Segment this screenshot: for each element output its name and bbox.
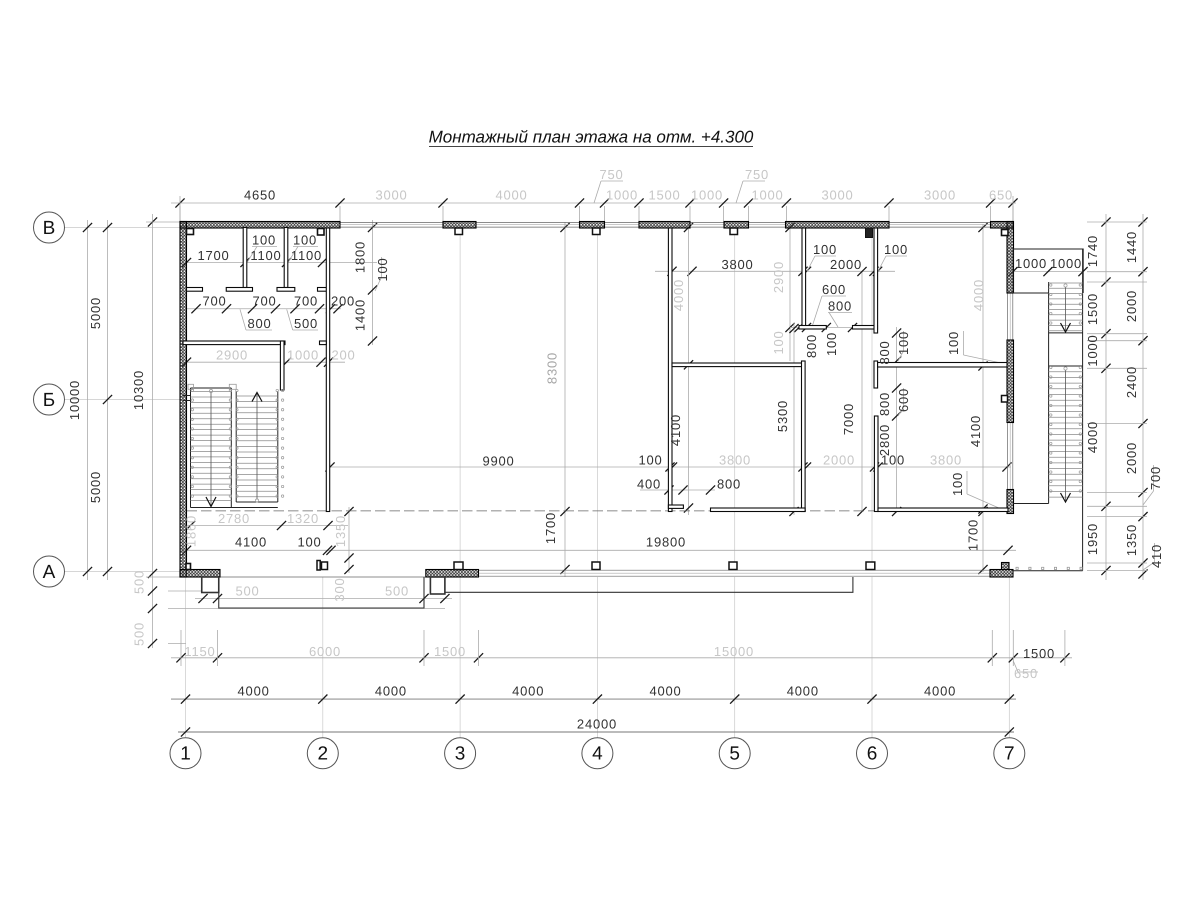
svg-text:500: 500 [132,570,147,594]
svg-text:1150: 1150 [184,644,215,659]
svg-text:700: 700 [1148,466,1163,490]
svg-text:8300: 8300 [545,352,560,384]
svg-text:10300: 10300 [131,370,146,410]
svg-text:4000: 4000 [512,684,544,699]
svg-text:Б: Б [43,390,55,411]
svg-text:1500: 1500 [1085,293,1100,325]
svg-text:1100: 1100 [291,248,322,263]
svg-text:2780: 2780 [218,511,250,526]
svg-text:2900: 2900 [771,261,786,293]
svg-text:В: В [43,218,56,239]
svg-text:100: 100 [881,453,905,468]
svg-text:3800: 3800 [719,453,751,468]
svg-text:4000: 4000 [671,279,686,311]
svg-text:700: 700 [252,294,276,309]
svg-text:5: 5 [729,744,740,765]
svg-text:200: 200 [331,294,355,309]
svg-text:4000: 4000 [238,684,270,699]
svg-text:600: 600 [896,388,911,412]
svg-text:3000: 3000 [924,188,956,203]
svg-text:4100: 4100 [668,414,683,446]
svg-text:2900: 2900 [216,348,248,363]
svg-text:100: 100 [252,233,276,248]
svg-text:2000: 2000 [830,257,862,272]
svg-text:500: 500 [294,316,318,331]
svg-text:9900: 9900 [482,454,514,469]
svg-text:1000: 1000 [1050,256,1082,271]
svg-text:1800: 1800 [353,241,368,273]
svg-text:4100: 4100 [235,535,267,550]
svg-text:1500: 1500 [434,644,466,659]
svg-text:4000: 4000 [649,684,681,699]
svg-text:5000: 5000 [88,471,103,503]
svg-text:750: 750 [599,167,623,182]
svg-text:1320: 1320 [287,511,319,526]
svg-text:6000: 6000 [309,644,341,659]
svg-text:1000: 1000 [751,188,783,203]
svg-text:3000: 3000 [821,188,853,203]
svg-text:1000: 1000 [1015,256,1047,271]
svg-text:800: 800 [247,316,271,331]
svg-text:800: 800 [828,299,852,314]
svg-text:1350: 1350 [1124,524,1139,556]
svg-text:1700: 1700 [197,248,229,263]
svg-text:100: 100 [297,535,321,550]
svg-text:650: 650 [1014,666,1038,681]
svg-text:6: 6 [867,744,878,765]
svg-text:700: 700 [202,294,226,309]
svg-text:1000: 1000 [606,188,638,203]
svg-text:1100: 1100 [250,248,281,263]
svg-text:3800: 3800 [721,257,753,272]
svg-text:1350: 1350 [333,515,348,547]
svg-text:19800: 19800 [646,535,686,550]
svg-text:700: 700 [294,294,318,309]
svg-text:100: 100 [884,242,908,257]
svg-text:А: А [43,562,56,583]
svg-text:800: 800 [717,477,741,492]
svg-text:4000: 4000 [1085,421,1100,453]
svg-text:1700: 1700 [966,519,981,551]
svg-text:2000: 2000 [823,453,855,468]
svg-text:7000: 7000 [841,403,856,435]
svg-text:1000: 1000 [1085,334,1100,366]
svg-text:1950: 1950 [1085,523,1100,555]
svg-text:100: 100 [896,331,911,355]
svg-text:500: 500 [235,584,259,599]
svg-text:4000: 4000 [924,684,956,699]
svg-text:300: 300 [332,577,347,601]
svg-text:1: 1 [180,744,191,765]
svg-text:400: 400 [637,477,661,492]
svg-text:2400: 2400 [1124,366,1139,398]
svg-text:2800: 2800 [877,424,892,456]
svg-text:200: 200 [331,348,355,363]
svg-text:100: 100 [638,453,662,468]
svg-text:100: 100 [824,332,839,356]
svg-text:650: 650 [989,188,1013,203]
svg-text:4000: 4000 [787,684,819,699]
svg-text:800: 800 [877,392,892,416]
svg-text:2000: 2000 [1124,290,1139,322]
svg-text:15000: 15000 [714,644,754,659]
svg-text:100: 100 [946,331,961,355]
svg-text:100: 100 [771,330,786,354]
svg-text:500: 500 [132,622,147,646]
svg-text:500: 500 [385,584,409,599]
svg-text:2000: 2000 [1124,442,1139,474]
svg-text:2: 2 [318,744,329,765]
svg-text:1700: 1700 [543,512,558,544]
svg-text:750: 750 [745,167,769,182]
svg-text:3000: 3000 [375,188,407,203]
svg-text:1740: 1740 [1085,235,1100,267]
svg-text:410: 410 [1149,544,1164,568]
svg-text:600: 600 [822,282,846,297]
svg-text:1860: 1860 [184,515,199,547]
svg-text:5000: 5000 [88,297,103,329]
svg-text:4100: 4100 [968,415,983,447]
svg-text:100: 100 [293,233,317,248]
svg-text:4650: 4650 [244,188,276,203]
svg-text:3: 3 [455,744,466,765]
svg-text:4000: 4000 [495,188,527,203]
svg-text:5300: 5300 [775,400,790,432]
svg-text:1000: 1000 [287,348,319,363]
svg-text:100: 100 [813,242,837,257]
svg-text:7: 7 [1004,744,1015,765]
svg-text:10000: 10000 [67,380,82,420]
svg-text:4: 4 [592,744,603,765]
svg-text:24000: 24000 [577,717,617,732]
svg-text:4000: 4000 [375,684,407,699]
svg-text:100: 100 [375,257,390,281]
svg-text:1500: 1500 [648,188,680,203]
svg-text:800: 800 [877,340,892,364]
svg-text:1000: 1000 [691,188,723,203]
svg-text:100: 100 [950,472,965,496]
svg-text:1440: 1440 [1124,231,1139,263]
svg-text:3800: 3800 [930,453,962,468]
svg-text:1500: 1500 [1023,646,1055,661]
svg-text:800: 800 [804,334,819,358]
svg-text:4000: 4000 [971,279,986,311]
svg-text:Монтажный план этажа на отм. +: Монтажный план этажа на отм. +4.300 [429,128,754,147]
